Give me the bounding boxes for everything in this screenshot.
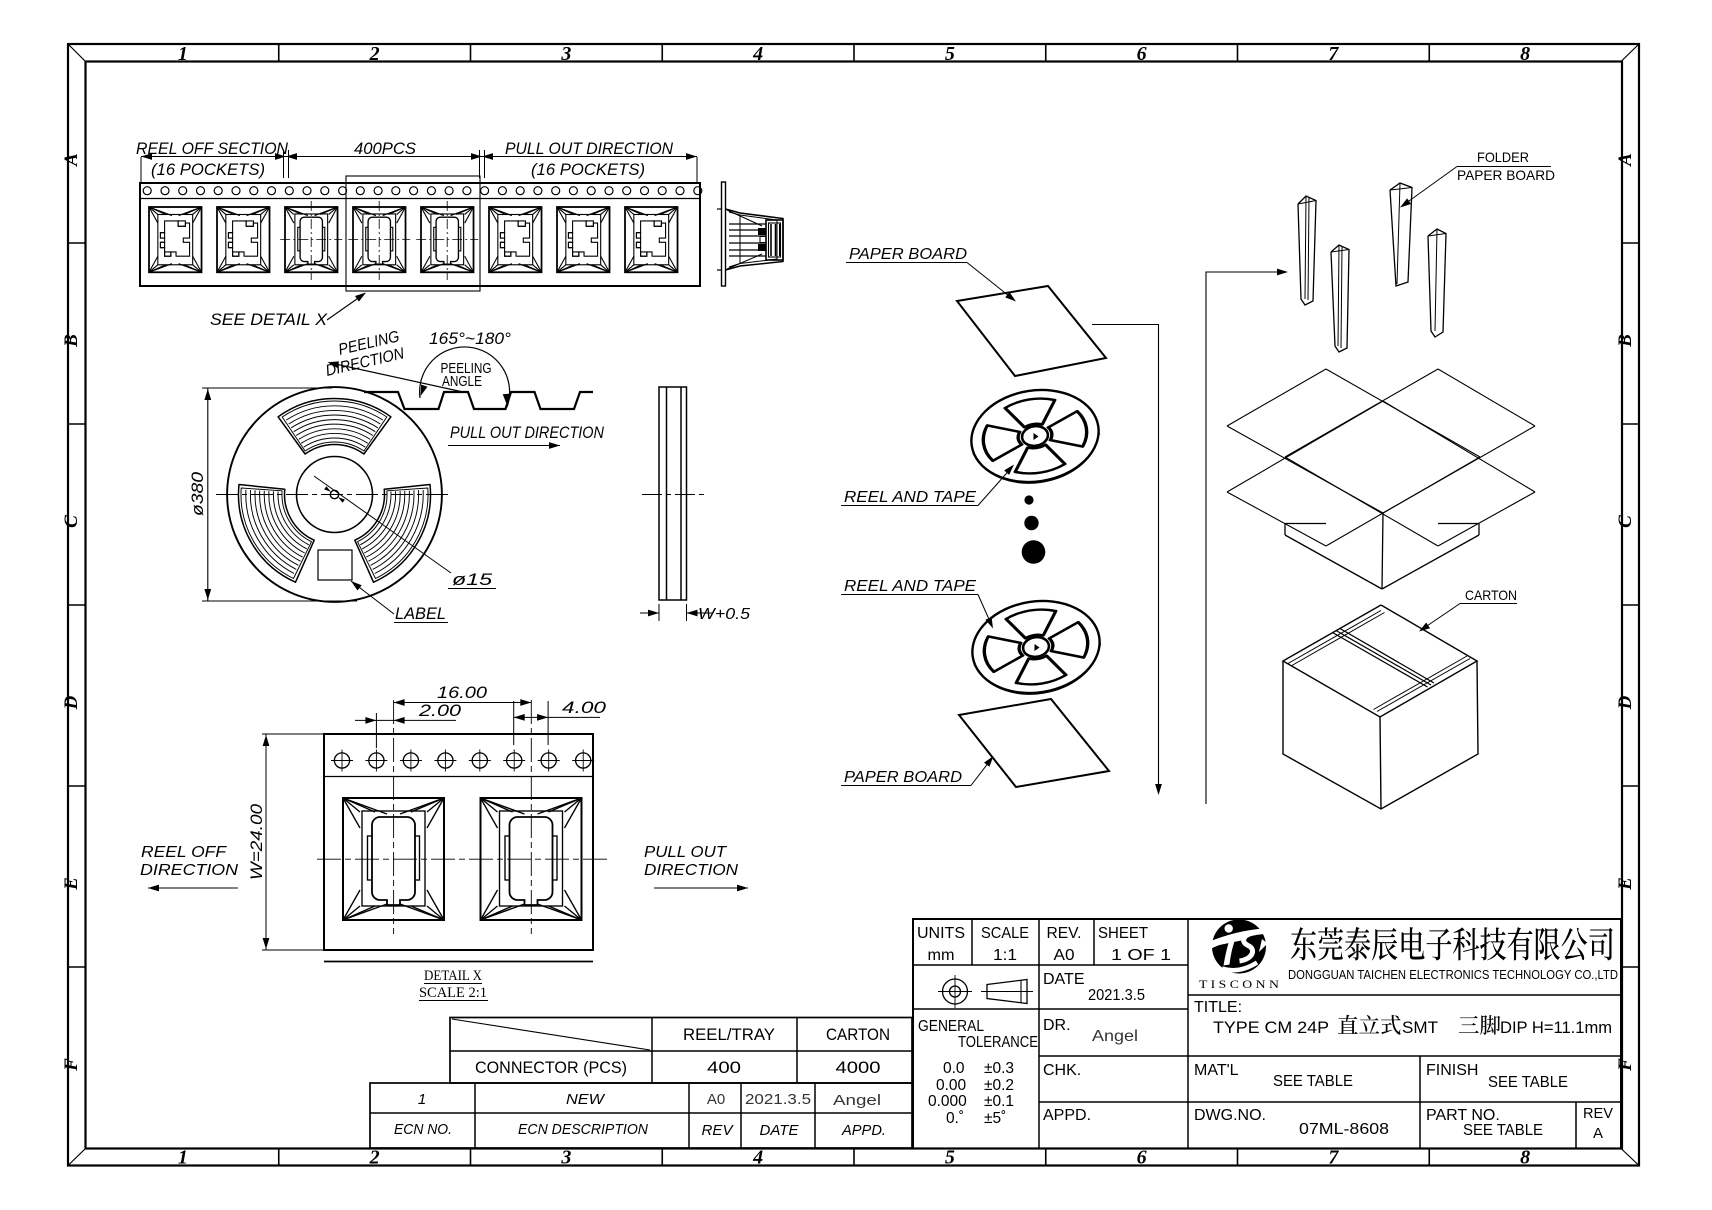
svg-text:TITLE:: TITLE: [1194,999,1242,1016]
svg-text:8: 8 [1520,43,1530,65]
svg-text:Angel: Angel [1092,1028,1138,1045]
svg-text:1: 1 [178,43,188,65]
svg-text:DETAIL X: DETAIL X [424,968,482,984]
svg-text:16.00: 16.00 [437,684,488,702]
svg-text:ECN NO.: ECN NO. [394,1121,452,1138]
svg-text:2: 2 [369,43,380,65]
svg-text:DR.: DR. [1043,1017,1071,1034]
svg-text:DIP H=11.1mm: DIP H=11.1mm [1500,1018,1612,1037]
svg-text:UNITS: UNITS [917,925,965,942]
svg-text:SEE TABLE: SEE TABLE [1273,1073,1353,1090]
svg-text:PAPER BOARD: PAPER BOARD [849,246,967,263]
svg-text:A: A [1593,1125,1603,1142]
svg-text:TYPE CM 24P: TYPE CM 24P [1213,1018,1329,1037]
svg-text:E: E [1615,877,1636,891]
svg-text:FOLDER: FOLDER [1477,149,1529,165]
svg-text:D: D [61,695,82,710]
svg-text:A: A [61,153,82,167]
svg-text:F: F [61,1058,82,1072]
svg-text:SEE TABLE: SEE TABLE [1463,1122,1543,1139]
svg-text:0.0: 0.0 [943,1060,965,1077]
svg-text:4.00: 4.00 [562,699,607,717]
svg-text:(16 POCKETS): (16 POCKETS) [151,160,265,179]
svg-text:1:1: 1:1 [993,947,1017,964]
svg-text:E: E [61,877,82,891]
svg-text:PULL OUT DIRECTION: PULL OUT DIRECTION [505,139,674,158]
svg-text:REV: REV [1583,1105,1613,1122]
svg-text:0.˚: 0.˚ [946,1110,964,1127]
svg-text:D: D [1615,695,1636,710]
svg-text:B: B [61,334,82,348]
svg-text:DATE: DATE [760,1122,800,1139]
svg-text:07ML-8608: 07ML-8608 [1299,1121,1389,1138]
svg-text:3: 3 [560,1147,571,1169]
svg-text:±0.2: ±0.2 [984,1077,1014,1094]
svg-text:2021.3.5: 2021.3.5 [1088,987,1145,1004]
svg-text:DONGGUAN TAICHEN ELECTRONICS: DONGGUAN TAICHEN ELECTRONICS TECHNOLOGY … [1288,967,1618,982]
svg-text:C: C [61,515,82,528]
svg-text:PAPER BOARD: PAPER BOARD [1457,167,1555,183]
svg-text:PULL OUT: PULL OUT [644,844,727,861]
svg-text:6: 6 [1137,1147,1147,1169]
svg-text:SCALE: SCALE [981,925,1029,942]
svg-text:APPD.: APPD. [841,1122,886,1139]
svg-text:FINISH: FINISH [1426,1062,1478,1079]
svg-text:mm: mm [928,947,955,964]
svg-text:REEL/TRAY: REEL/TRAY [683,1025,775,1044]
svg-text:APPD.: APPD. [1043,1107,1091,1124]
svg-text:REV: REV [702,1122,735,1139]
svg-text:CARTON: CARTON [1465,587,1517,603]
svg-text:5: 5 [945,1147,955,1169]
svg-text:ECN DESCRIPTION: ECN DESCRIPTION [518,1121,648,1138]
svg-text:REEL AND TAPE: REEL AND TAPE [844,578,976,595]
svg-text:A0: A0 [707,1091,725,1108]
svg-text:W+0.5: W+0.5 [698,606,750,623]
svg-text:0.00: 0.00 [936,1077,967,1094]
svg-text:400PCS: 400PCS [354,139,417,158]
svg-text:1: 1 [178,1147,188,1169]
svg-text:DIRECTION: DIRECTION [140,862,238,879]
svg-text:DATE: DATE [1043,971,1084,988]
svg-text:CONNECTOR (PCS): CONNECTOR (PCS) [475,1058,627,1077]
svg-text:±0.1: ±0.1 [984,1093,1014,1110]
svg-text:REEL OFF: REEL OFF [141,844,227,861]
svg-text:1: 1 [418,1091,426,1108]
svg-text:GENERAL: GENERAL [918,1018,984,1035]
svg-text:Angel: Angel [833,1092,881,1109]
svg-text:ANGLE: ANGLE [442,374,482,390]
svg-text:(16 POCKETS): (16 POCKETS) [531,160,645,179]
svg-text:LABEL: LABEL [395,604,446,623]
svg-text:SHEET: SHEET [1098,925,1148,942]
svg-text:8: 8 [1520,1147,1530,1169]
svg-text:SCALE 2:1: SCALE 2:1 [419,985,487,1001]
svg-text:SEE TABLE: SEE TABLE [1488,1074,1568,1091]
svg-text:REV.: REV. [1047,925,1082,942]
svg-text:CHK.: CHK. [1043,1062,1081,1079]
svg-text:2021.3.5: 2021.3.5 [745,1091,811,1108]
svg-text:SMT: SMT [1402,1018,1438,1037]
svg-text:3: 3 [560,43,571,65]
svg-text:MAT'L: MAT'L [1194,1062,1239,1079]
svg-text:ø15: ø15 [452,570,493,589]
svg-text:4: 4 [752,43,763,65]
svg-text:400: 400 [707,1058,741,1077]
svg-text:SEE DETAIL X: SEE DETAIL X [210,310,328,329]
svg-text:C: C [1615,515,1636,528]
svg-text:±0.3: ±0.3 [984,1060,1014,1077]
svg-text:B: B [1615,334,1636,348]
svg-text:CARTON: CARTON [826,1025,890,1044]
svg-text:REEL OFF SECTION: REEL OFF SECTION [136,139,289,158]
svg-text:2: 2 [369,1147,380,1169]
svg-text:NEW: NEW [566,1091,606,1108]
svg-text:DWG.NO.: DWG.NO. [1194,1107,1266,1124]
svg-text:0.000: 0.000 [928,1093,967,1110]
svg-text:A0: A0 [1054,947,1075,964]
svg-text:7: 7 [1328,43,1339,65]
svg-text:T I S C O N N: T I S C O N N [1199,977,1279,991]
svg-text:W=24.00: W=24.00 [248,803,266,880]
svg-text:A: A [1615,153,1636,167]
svg-text:6: 6 [1137,43,1147,65]
svg-text:5: 5 [945,43,955,65]
svg-text:7: 7 [1328,1147,1339,1169]
svg-text:PULL OUT DIRECTION: PULL OUT DIRECTION [450,423,605,442]
svg-text:1 OF 1: 1 OF 1 [1111,947,1171,964]
svg-text:REEL AND TAPE: REEL AND TAPE [844,489,976,506]
svg-text:165°~180°: 165°~180° [429,329,511,348]
svg-text:PAPER BOARD: PAPER BOARD [844,769,962,786]
svg-text:±5˚: ±5˚ [984,1110,1006,1127]
svg-text:TOLERANCE: TOLERANCE [958,1034,1038,1051]
svg-text:ø380: ø380 [188,471,207,516]
svg-text:F: F [1615,1058,1636,1072]
svg-text:2.00: 2.00 [418,702,462,720]
svg-text:4000: 4000 [836,1058,881,1077]
svg-text:DIRECTION: DIRECTION [644,862,738,879]
svg-text:4: 4 [752,1147,763,1169]
